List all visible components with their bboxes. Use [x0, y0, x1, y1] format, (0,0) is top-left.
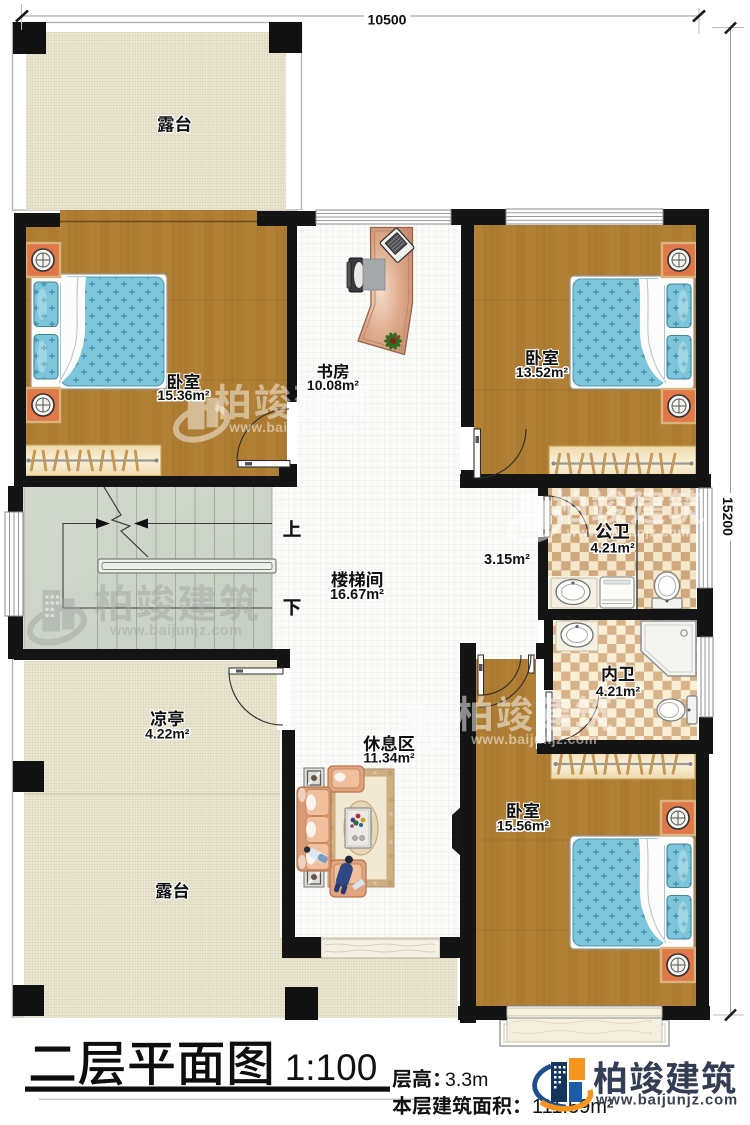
svg-text:15200: 15200	[720, 497, 736, 536]
svg-text:3.15m²: 3.15m²	[484, 552, 530, 568]
svg-text:15.36m²: 15.36m²	[157, 387, 209, 403]
svg-text:1:100: 1:100	[285, 1047, 378, 1088]
svg-text:10.08m²: 10.08m²	[307, 377, 359, 393]
svg-text:4.21m²: 4.21m²	[590, 540, 635, 556]
svg-text:www.baijunjz.com: www.baijunjz.com	[470, 732, 597, 747]
svg-text:3.3m: 3.3m	[445, 1069, 488, 1091]
svg-text:4.21m²: 4.21m²	[596, 683, 641, 699]
svg-text:16.67m²: 16.67m²	[330, 587, 384, 603]
svg-text:www.baijunjz.com: www.baijunjz.com	[109, 623, 242, 639]
svg-text:www.baijunjz.com: www.baijunjz.com	[595, 1093, 738, 1109]
svg-text:4.22m²: 4.22m²	[145, 726, 190, 742]
svg-text:10500: 10500	[368, 12, 407, 28]
svg-text:11.34m²: 11.34m²	[363, 750, 415, 766]
svg-text:www.baijunjz.com: www.baijunjz.com	[228, 420, 355, 435]
svg-text:15.56m²: 15.56m²	[497, 818, 549, 834]
svg-text:13.52m²: 13.52m²	[516, 364, 568, 380]
